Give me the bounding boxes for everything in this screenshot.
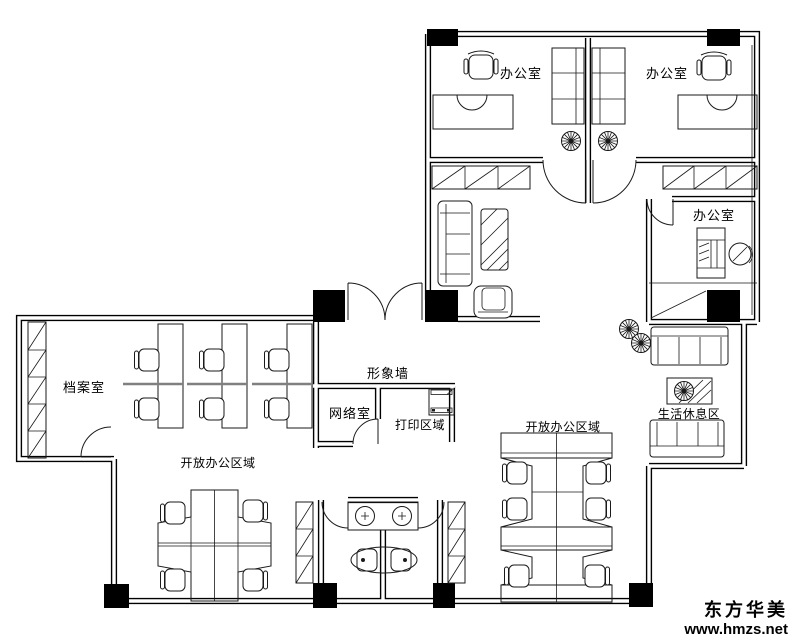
bookshelf (592, 48, 625, 124)
watermark-brand: 东方华美 (704, 599, 788, 620)
balcony-platform (651, 291, 706, 318)
chair (265, 398, 290, 420)
column (313, 290, 345, 322)
window-line (649, 45, 757, 315)
rest-sofa-bottom (650, 420, 724, 457)
reception-rug (481, 209, 508, 270)
desk (158, 324, 183, 428)
label-network-room: 网络室 (329, 406, 371, 421)
column (707, 290, 740, 322)
chair (505, 565, 530, 587)
office-chair (697, 52, 731, 80)
column (425, 290, 458, 322)
desk-arc (457, 95, 487, 110)
column (104, 584, 129, 608)
desk (678, 95, 757, 129)
column (433, 583, 455, 608)
desk (222, 324, 247, 428)
rest-sofa-top (651, 327, 728, 365)
archive-shelving (28, 322, 46, 458)
workstation-cluster-right (501, 433, 612, 602)
entry-door-right (385, 283, 422, 320)
label-office-right: 办公室 (693, 208, 735, 223)
walls (19, 34, 757, 601)
plant-symbol (562, 132, 581, 151)
bathroom-door-left (322, 502, 348, 528)
column (313, 583, 337, 608)
chair (265, 349, 290, 371)
workstation-cluster-left (158, 490, 271, 601)
open-office-left-workstations (123, 324, 312, 428)
label-open-office-right: 开放办公区域 (525, 419, 600, 434)
label-rest-area: 生活休息区 (658, 406, 721, 421)
reception-armchair (474, 286, 512, 318)
plant-symbol (632, 334, 651, 353)
label-open-office-left: 开放办公区域 (180, 455, 255, 470)
wardrobe-right (663, 166, 757, 189)
entry-door-left (348, 283, 385, 320)
chair (161, 502, 186, 524)
office-chair (464, 51, 498, 79)
chair (161, 569, 186, 591)
watermark-website: www.hmzs.net (683, 621, 788, 638)
column (629, 583, 653, 607)
desk-arc (707, 95, 737, 110)
chair (200, 398, 225, 420)
room-labels: 办公室 办公室 办公室 档案室 形象墙 网络室 打印区域 开放办公区域 开放办公… (63, 66, 735, 470)
desk (433, 95, 513, 129)
chair (503, 462, 528, 484)
bookshelf (552, 48, 584, 124)
label-office-top-left: 办公室 (500, 66, 542, 81)
office-floor-plan: 办公室 办公室 办公室 档案室 形象墙 网络室 打印区域 开放办公区域 开放办公… (0, 0, 800, 640)
chair (135, 349, 160, 371)
chair (503, 498, 528, 520)
doors (81, 160, 673, 528)
reception-sofa (438, 201, 472, 286)
chair (585, 565, 610, 587)
sink-counter (348, 502, 418, 530)
wardrobe-left (432, 166, 530, 189)
label-archive-room: 档案室 (63, 380, 105, 395)
office-right-furniture (697, 228, 753, 278)
chair (586, 462, 611, 484)
chair (243, 500, 268, 522)
plant-symbol (599, 132, 618, 151)
label-office-top-right: 办公室 (646, 66, 688, 81)
label-feature-wall: 形象墙 (367, 366, 409, 381)
watermark: 东方华美 www.hmzs.net (683, 599, 788, 638)
rest-coffee-table (667, 378, 712, 404)
toilet (391, 549, 411, 571)
chair (243, 569, 268, 591)
office-top-left-furniture (433, 51, 513, 129)
desk (287, 324, 312, 428)
office-top-right-furniture (678, 52, 757, 129)
archive-door (81, 427, 111, 457)
network-room-door (353, 419, 378, 444)
label-print-area: 打印区域 (395, 418, 445, 432)
office1-door (543, 160, 586, 203)
column (427, 29, 458, 46)
chair (200, 349, 225, 371)
chair (135, 398, 160, 420)
column (707, 29, 740, 46)
office2-door (593, 160, 636, 203)
chair (586, 498, 611, 520)
toilet (357, 549, 377, 571)
plant-symbol (675, 382, 694, 401)
